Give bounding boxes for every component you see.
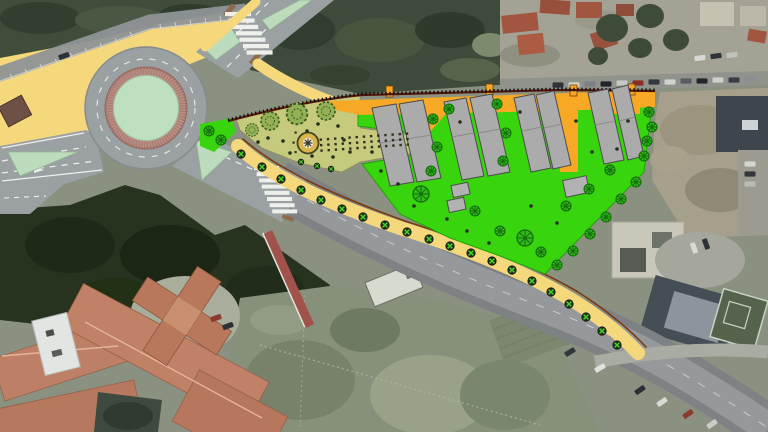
tree-icon xyxy=(413,186,429,202)
tree-icon xyxy=(246,124,259,137)
tree-icon xyxy=(536,247,546,257)
tree-icon xyxy=(644,107,654,117)
tree-icon xyxy=(601,212,611,222)
tree-icon xyxy=(605,165,615,175)
site-plan-map xyxy=(0,0,768,432)
tree-icon xyxy=(616,194,626,204)
tree-icon xyxy=(631,177,641,187)
tree-icon xyxy=(584,184,594,194)
tree-icon xyxy=(287,104,308,125)
tree-icon xyxy=(428,114,438,124)
tree-icon xyxy=(495,226,505,236)
tree-icon xyxy=(470,206,480,216)
tree-icon xyxy=(261,112,279,130)
tree-icon xyxy=(552,260,562,270)
tree-icon xyxy=(216,135,226,145)
tree-icon xyxy=(585,229,595,239)
tree-icon xyxy=(501,128,511,138)
tree-icon xyxy=(204,126,214,136)
tree-icon xyxy=(642,136,652,146)
tree-icon xyxy=(561,201,571,211)
map-canvas xyxy=(0,0,768,432)
tree-icon xyxy=(492,99,502,109)
tree-icon xyxy=(444,104,454,114)
tree-icon xyxy=(517,230,533,246)
tree-icon xyxy=(639,151,649,161)
roundabout xyxy=(85,47,207,169)
tree-icon xyxy=(647,122,657,132)
circular-plaza xyxy=(298,133,319,154)
neighborhood-top-right xyxy=(500,0,768,88)
tree-icon xyxy=(432,142,442,152)
tree-icon xyxy=(426,166,436,176)
roundabout-center-island xyxy=(114,76,179,141)
tree-icon xyxy=(317,102,335,120)
tree-icon xyxy=(498,156,508,166)
tree-icon xyxy=(568,246,578,256)
